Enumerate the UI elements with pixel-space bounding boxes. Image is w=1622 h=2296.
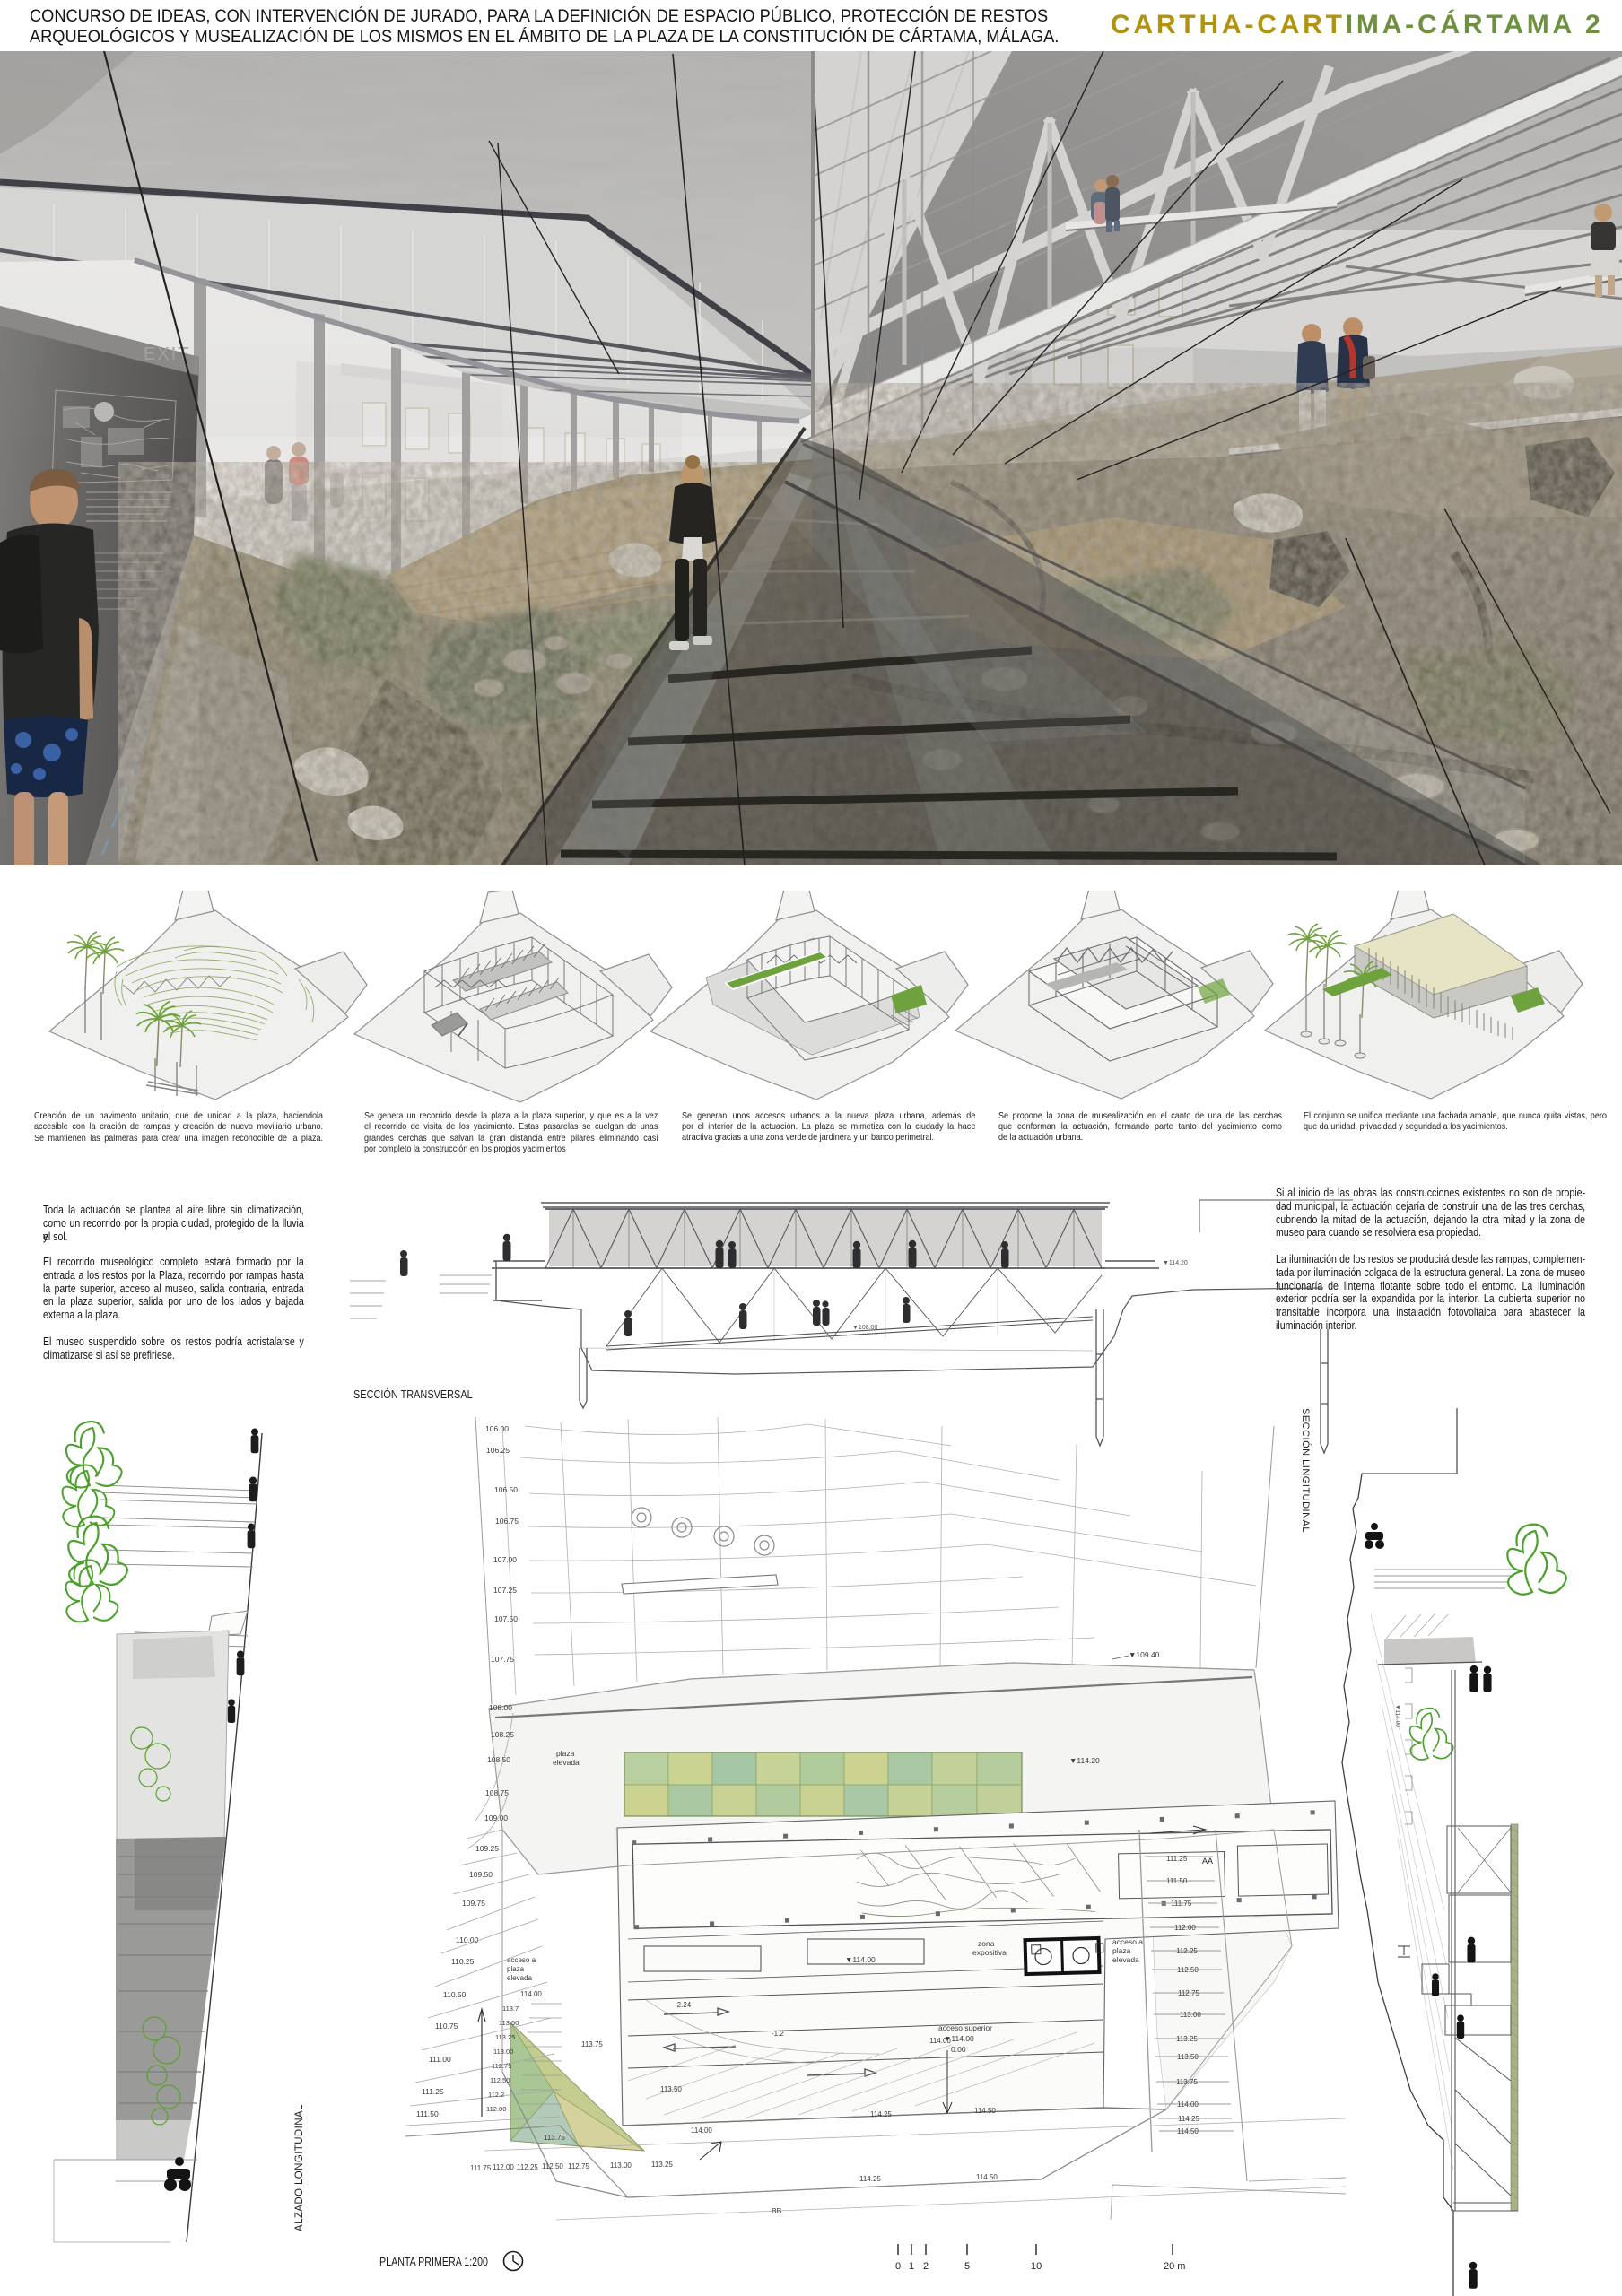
svg-text:112.75: 112.75 (568, 2162, 589, 2170)
svg-text:112.00: 112.00 (1174, 1924, 1196, 1932)
svg-text:107.50: 107.50 (494, 1614, 518, 1623)
svg-text:elevada: elevada (1112, 1955, 1139, 1964)
svg-text:114.00: 114.00 (1177, 2100, 1199, 2109)
svg-text:110.00: 110.00 (456, 1935, 479, 1944)
svg-text:▼114.20: ▼114.20 (1069, 1756, 1100, 1765)
svg-text:112.75: 112.75 (492, 2062, 511, 2070)
svg-text:112.75: 112.75 (1178, 1989, 1199, 1997)
svg-text:▼114.20: ▼114.20 (1163, 1260, 1188, 1266)
svg-text:114.25: 114.25 (870, 2110, 892, 2118)
svg-text:113.75: 113.75 (544, 2134, 565, 2142)
svg-text:1: 1 (909, 2261, 914, 2272)
svg-text:112.00: 112.00 (493, 2163, 514, 2171)
svg-text:112.50: 112.50 (1177, 1966, 1199, 1974)
svg-text:▼109.40: ▼109.40 (1129, 1650, 1160, 1659)
svg-text:109.25: 109.25 (475, 1844, 499, 1853)
svg-text:112.25: 112.25 (1176, 1947, 1198, 1955)
svg-text:109.50: 109.50 (469, 1870, 493, 1879)
svg-text:PLANTA PRIMERA 1:200: PLANTA PRIMERA 1:200 (379, 2256, 488, 2268)
svg-text:113.75: 113.75 (581, 2040, 603, 2048)
svg-text:106.50: 106.50 (494, 1485, 518, 1494)
svg-text:108.00: 108.00 (489, 1703, 512, 1712)
svg-text:0: 0 (895, 2261, 901, 2272)
svg-text:112.25: 112.25 (517, 2163, 538, 2171)
svg-text:114.25: 114.25 (1178, 2115, 1199, 2123)
svg-text:106.75: 106.75 (495, 1517, 519, 1526)
svg-text:acceso superior: acceso superior (938, 2023, 992, 2032)
svg-text:2: 2 (923, 2261, 929, 2272)
svg-text:acceso a: acceso a (507, 1956, 536, 1964)
svg-text:114.00: 114.00 (520, 1990, 542, 1998)
svg-text:113.75: 113.75 (1176, 2078, 1198, 2086)
svg-text:113.50: 113.50 (499, 2019, 519, 2027)
svg-text:acceso a: acceso a (1112, 1937, 1143, 1946)
svg-text:5: 5 (964, 2261, 970, 2272)
svg-text:113.7: 113.7 (502, 2005, 519, 2013)
svg-text:106.00: 106.00 (485, 1424, 509, 1433)
svg-text:SECCIÓN LINGITUDINAL: SECCIÓN LINGITUDINAL (1300, 1408, 1312, 1533)
svg-text:106.25: 106.25 (486, 1446, 510, 1455)
svg-text:111.25: 111.25 (422, 2087, 444, 2096)
svg-text:▼114.00: ▼114.00 (845, 1955, 876, 1964)
svg-text:110.25: 110.25 (451, 1957, 475, 1966)
svg-text:113.25: 113.25 (495, 2033, 515, 2041)
svg-text:110.50: 110.50 (443, 1990, 467, 1999)
svg-text:112.50: 112.50 (542, 2162, 563, 2170)
svg-text:113.00: 113.00 (610, 2161, 632, 2170)
svg-text:108.75: 108.75 (485, 1788, 509, 1797)
svg-text:0.00: 0.00 (951, 2045, 966, 2054)
svg-text:110.75: 110.75 (435, 2022, 458, 2031)
svg-text:▼108.00: ▼108.00 (852, 1325, 877, 1331)
svg-text:10: 10 (1031, 2261, 1042, 2272)
svg-text:111.50: 111.50 (1166, 1877, 1188, 1885)
svg-text:112.50: 112.50 (490, 2076, 510, 2084)
svg-text:108.50: 108.50 (487, 1755, 510, 1764)
svg-text:107.75: 107.75 (491, 1655, 514, 1664)
svg-text:114.00: 114.00 (691, 2126, 712, 2135)
svg-text:20 m: 20 m (1164, 2261, 1185, 2272)
svg-text:▼114.00: ▼114.00 (1394, 1704, 1400, 1727)
svg-text:111.75: 111.75 (1171, 1900, 1192, 1908)
svg-text:zona: zona (978, 1939, 995, 1948)
svg-text:expositiva: expositiva (972, 1948, 1007, 1957)
svg-text:113.25: 113.25 (1176, 2035, 1198, 2043)
svg-text:107.25: 107.25 (493, 1586, 517, 1595)
svg-text:114.25: 114.25 (859, 2175, 881, 2183)
svg-text:111.50: 111.50 (416, 2109, 439, 2118)
svg-text:114.00: 114.00 (929, 2037, 951, 2045)
svg-text:113.25: 113.25 (651, 2161, 673, 2169)
svg-text:111.25: 111.25 (1166, 1855, 1188, 1863)
svg-text:plaza: plaza (556, 1749, 575, 1758)
svg-text:elevada: elevada (507, 1974, 533, 1982)
svg-text:112.00: 112.00 (486, 2105, 506, 2113)
svg-text:113.00: 113.00 (1180, 2011, 1201, 2019)
svg-text:114.50: 114.50 (976, 2173, 998, 2181)
svg-text:AA: AA (1202, 1857, 1213, 1865)
svg-text:114.50: 114.50 (974, 2107, 996, 2115)
svg-text:-1.2: -1.2 (772, 2030, 784, 2038)
svg-text:114.50: 114.50 (1177, 2127, 1199, 2135)
svg-text:113.00: 113.00 (493, 2048, 513, 2056)
svg-text:elevada: elevada (553, 1758, 580, 1767)
svg-text:108.25: 108.25 (491, 1730, 514, 1739)
svg-text:plaza: plaza (1112, 1946, 1131, 1955)
svg-text:111.00: 111.00 (429, 2055, 451, 2064)
svg-text:ALZADO LONGITUDINAL: ALZADO LONGITUDINAL (294, 2104, 305, 2231)
svg-text:plaza: plaza (507, 1965, 525, 1973)
svg-text:112.2: 112.2 (488, 2091, 504, 2099)
svg-text:113.50: 113.50 (1177, 2053, 1199, 2061)
svg-text:113.50: 113.50 (660, 2085, 682, 2093)
svg-text:BB: BB (772, 2206, 782, 2215)
svg-text:107.00: 107.00 (493, 1555, 517, 1564)
svg-text:109.75: 109.75 (462, 1899, 485, 1908)
svg-text:-2.24: -2.24 (675, 2001, 692, 2009)
svg-text:111.75: 111.75 (470, 2164, 492, 2172)
